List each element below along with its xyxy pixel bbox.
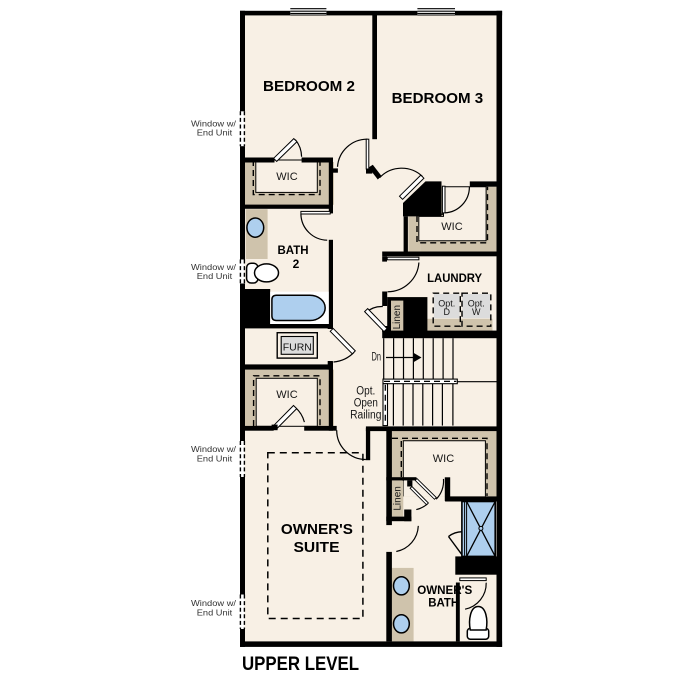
svg-text:Linen: Linen [392, 305, 403, 329]
svg-text:D: D [444, 307, 451, 317]
svg-text:Open: Open [354, 398, 378, 410]
svg-text:End Unit: End Unit [197, 271, 233, 281]
svg-text:OWNER'S: OWNER'S [281, 521, 353, 538]
svg-text:End Unit: End Unit [197, 453, 233, 463]
svg-text:FURN: FURN [283, 342, 312, 354]
svg-text:BATH: BATH [428, 595, 459, 609]
svg-text:Dn: Dn [372, 350, 382, 364]
svg-text:WIC: WIC [441, 221, 462, 233]
svg-text:LAUNDRY: LAUNDRY [427, 271, 482, 285]
svg-text:BEDROOM 3: BEDROOM 3 [392, 90, 484, 107]
svg-text:BEDROOM 2: BEDROOM 2 [263, 78, 355, 95]
svg-text:W: W [472, 307, 481, 317]
svg-text:Railing: Railing [350, 409, 381, 421]
svg-text:SUITE: SUITE [294, 539, 340, 556]
svg-text:End Unit: End Unit [197, 607, 233, 617]
svg-text:Linen: Linen [393, 486, 404, 510]
svg-text:End Unit: End Unit [197, 128, 233, 138]
svg-text:2: 2 [293, 257, 300, 271]
svg-text:WIC: WIC [276, 389, 297, 401]
svg-text:WIC: WIC [433, 453, 454, 465]
svg-text:Opt.: Opt. [356, 386, 375, 398]
svg-text:BATH: BATH [278, 243, 309, 257]
svg-text:WIC: WIC [276, 171, 297, 183]
svg-text:UPPER LEVEL: UPPER LEVEL [242, 654, 359, 675]
